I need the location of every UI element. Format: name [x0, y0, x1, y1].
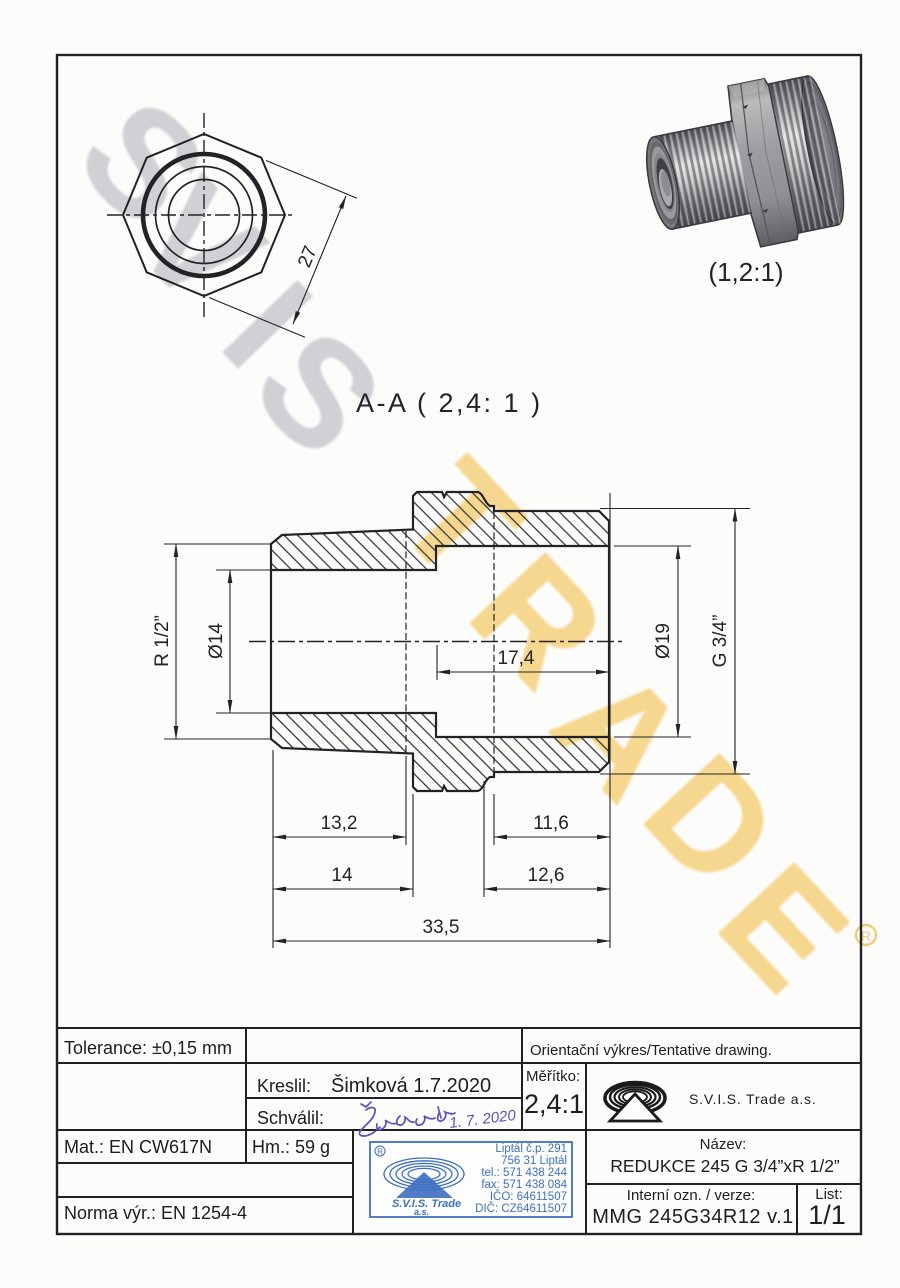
svg-text:33,5: 33,5: [423, 917, 460, 938]
svg-text:Kreslil:: Kreslil:: [257, 1076, 311, 1096]
svg-text:R: R: [377, 1148, 383, 1157]
svg-text:S.V.I.S. Trade a.s.: S.V.I.S. Trade a.s.: [689, 1091, 817, 1107]
svg-text:12,6: 12,6: [528, 865, 565, 886]
svg-text:756 31 Liptál: 756 31 Liptál: [501, 1155, 567, 1167]
svg-text:a.s.: a.s.: [414, 1207, 429, 1217]
svg-text:fax: 571 438 084: fax: 571 438 084: [481, 1179, 567, 1191]
svg-text:DIČ: CZ64611507: DIČ: CZ64611507: [475, 1202, 567, 1215]
svg-text:14: 14: [331, 865, 353, 886]
svg-text:Ø19: Ø19: [653, 623, 674, 659]
svg-text:Norma výr.: EN 1254-4: Norma výr.: EN 1254-4: [64, 1203, 247, 1223]
svg-text:Měřítko:: Měřítko:: [526, 1068, 580, 1085]
svg-text:IČO: 64611507: IČO: 64611507: [490, 1190, 567, 1203]
svg-text:Tolerance: ±0,15 mm: Tolerance: ±0,15 mm: [64, 1038, 232, 1058]
svg-text:tel.: 571 438 244: tel.: 571 438 244: [481, 1167, 567, 1179]
svg-text:13,2: 13,2: [321, 813, 358, 834]
svg-text:1. 7. 2020: 1. 7. 2020: [448, 1107, 517, 1132]
svg-text:2,4:1: 2,4:1: [524, 1089, 584, 1119]
svg-text:MMG 245G34R12 v.1: MMG 245G34R12 v.1: [592, 1206, 794, 1228]
svg-text:Ø14: Ø14: [206, 623, 227, 659]
svg-text:Mat.: EN CW617N: Mat.: EN CW617N: [64, 1137, 212, 1157]
svg-text:A-A ( 2,4: 1 ): A-A ( 2,4: 1 ): [356, 388, 543, 418]
svg-text:Hm.: 59 g: Hm.: 59 g: [252, 1137, 330, 1157]
svg-text:Šimková 1.7.2020: Šimková 1.7.2020: [331, 1074, 491, 1097]
svg-text:1/1: 1/1: [808, 1200, 846, 1230]
svg-text:G 3/4”: G 3/4”: [710, 615, 731, 668]
svg-text:R 1/2”: R 1/2”: [152, 615, 173, 667]
svg-text:17,4: 17,4: [498, 648, 535, 669]
svg-text:Interní ozn. / verze:: Interní ozn. / verze:: [627, 1187, 755, 1204]
svg-text:Schválil:: Schválil:: [257, 1108, 324, 1128]
svg-text:Název:: Název:: [700, 1136, 747, 1153]
svg-text:(1,2:1): (1,2:1): [708, 257, 783, 287]
svg-text:Orientační výkres/Tentative dr: Orientační výkres/Tentative drawing.: [530, 1042, 772, 1059]
svg-text:Liptál č.p. 291: Liptál č.p. 291: [495, 1143, 567, 1155]
svg-text:11,6: 11,6: [533, 813, 569, 834]
svg-text:R: R: [861, 928, 871, 944]
svg-text:REDUKCE 245 G 3/4”xR 1/2”: REDUKCE 245 G 3/4”xR 1/2”: [610, 1156, 840, 1176]
